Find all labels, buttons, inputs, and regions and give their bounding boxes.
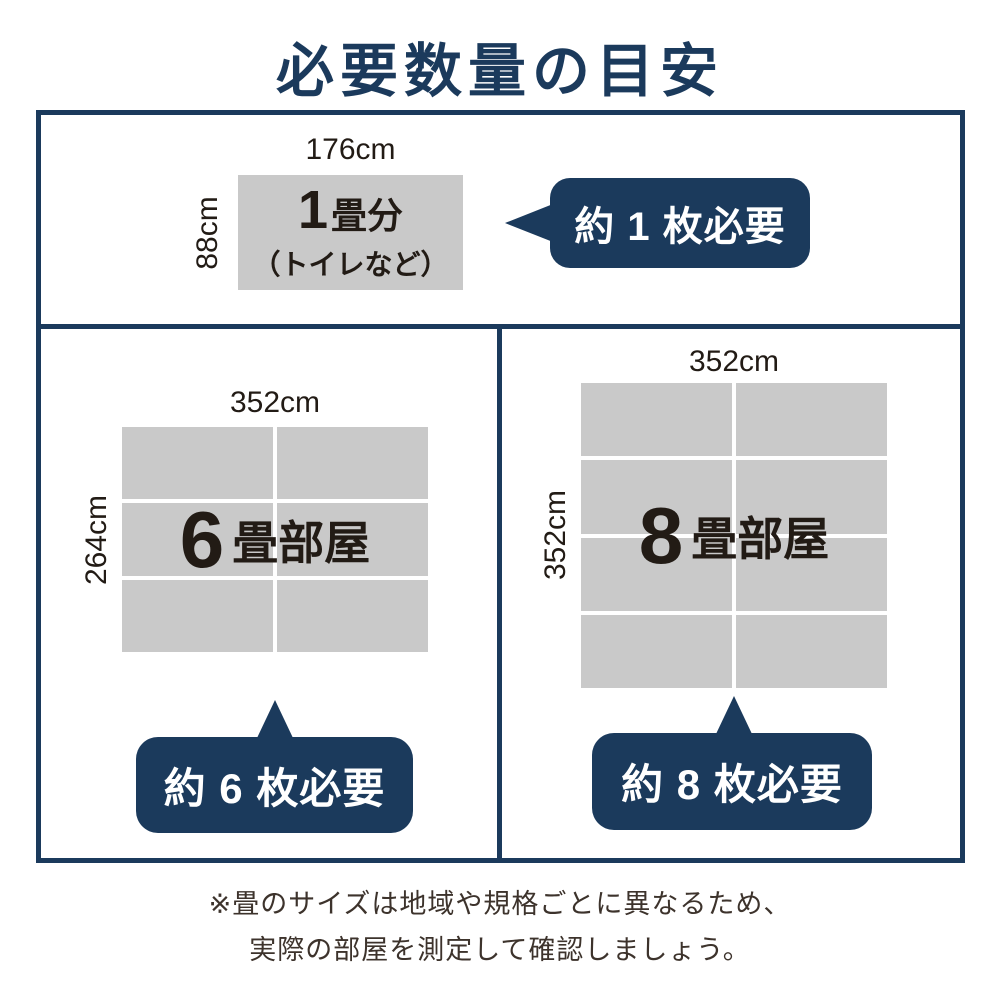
one-tatami-unit: 畳分 [331,187,403,239]
page-title: 必要数量の目安 [0,24,1000,108]
six-tatami-width-label: 352cm [122,386,428,420]
eight-tatami-count: 8 [639,496,684,576]
callout-up-arrow-icon [716,696,752,734]
six-tatami-callout-text: 約 6 枚必要 [164,755,386,816]
one-tatami-diagram: 1 畳分 （トイレなど） [238,175,463,290]
one-tatami-callout: 約 1 枚必要 [550,178,810,268]
six-tatami-count: 6 [180,500,225,580]
vertical-divider [497,324,502,863]
one-tatami-usage-note: （トイレなど） [252,243,448,283]
one-tatami-callout-text: 約 1 枚必要 [574,194,785,252]
six-tatami-callout: 約 6 枚必要 [136,737,413,833]
eight-tatami-callout: 約 8 枚必要 [592,733,872,830]
tatami-quantity-infographic: 必要数量の目安 176cm 88cm 1 畳分 （トイレなど） 約 1 枚必要 … [0,0,1000,1000]
footnote-line1: ※畳のサイズは地域や規格ごとに異なるため、 [0,881,1000,927]
eight-tatami-callout-text: 約 8 枚必要 [621,751,843,812]
footnote-line2: 実際の部屋を測定して確認しましょう。 [0,927,1000,973]
one-tatami-count: 1 [298,183,328,237]
six-tatami-unit: 畳部屋 [232,507,370,573]
six-tatami-room-label: 6 畳部屋 [122,427,428,652]
one-tatami-height-label: 88cm [191,196,225,269]
eight-tatami-width-label: 352cm [581,345,887,379]
callout-up-arrow-icon [257,700,293,738]
one-tatami-width-label: 176cm [238,133,463,167]
footnote: ※畳のサイズは地域や規格ごとに異なるため、 実際の部屋を測定して確認しましょう。 [0,881,1000,973]
one-tatami-room-label: 1 畳分 [298,183,403,239]
eight-tatami-unit: 畳部屋 [691,503,829,569]
eight-tatami-height-label: 352cm [539,490,573,580]
eight-tatami-room-label: 8 畳部屋 [581,383,887,688]
six-tatami-height-label: 264cm [80,495,114,585]
callout-left-arrow-icon [505,204,553,242]
